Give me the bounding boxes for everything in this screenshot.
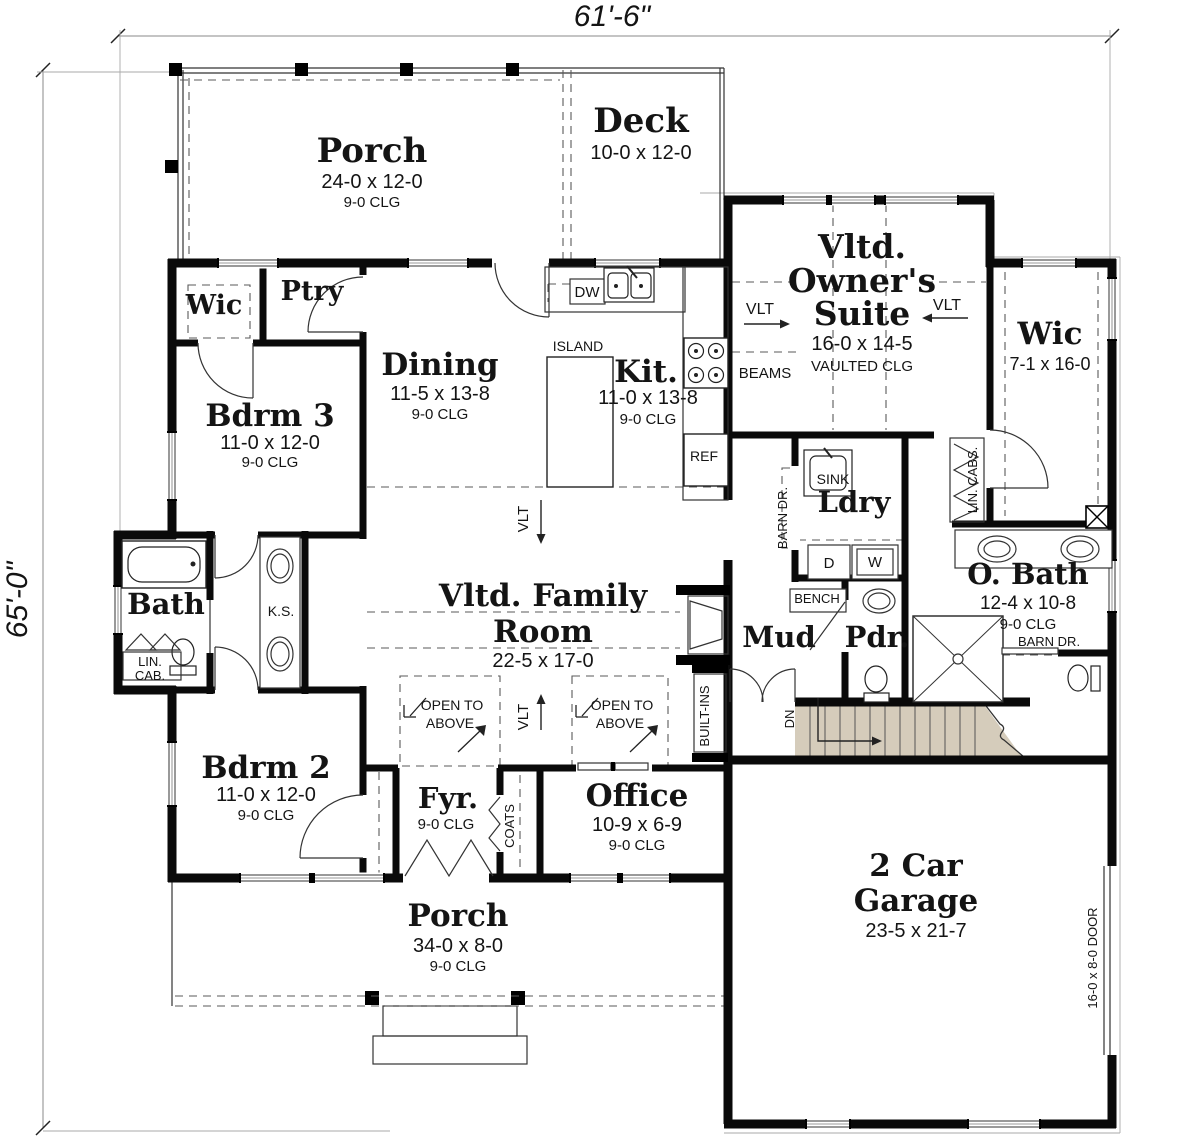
label-bdrm2-clg: 9-0 CLG <box>238 807 295 824</box>
label-obath-name: O. Bath <box>967 557 1089 591</box>
label-mud-name: Mud <box>742 620 815 654</box>
fireplace <box>676 585 730 665</box>
label-porch-bottom-name: Porch <box>408 898 509 934</box>
label-family-name-2: Room <box>493 614 593 650</box>
label-bench: BENCH <box>794 591 840 606</box>
label-vlt-left: VLT <box>746 301 774 318</box>
label-deck-size: 10-0 x 12-0 <box>590 142 691 164</box>
label-kit-name: Kit. <box>614 354 678 390</box>
chase-box <box>1086 506 1108 528</box>
label-garage-door: 16-0 x 8-0 DOOR <box>1085 907 1100 1008</box>
toilet-powder <box>864 666 889 702</box>
toilet-wc <box>1068 665 1100 691</box>
label-kit-clg: 9-0 CLG <box>620 411 677 428</box>
label-vlt-right: VLT <box>933 297 961 314</box>
label-obath-clg: 9-0 CLG <box>1000 616 1057 633</box>
label-kit-size: 11-0 x 13-8 <box>598 387 698 409</box>
vlt-arrow-family-top <box>537 500 546 544</box>
label-dining-name: Dining <box>381 347 498 383</box>
powder-sink <box>863 589 895 613</box>
label-dining-clg: 9-0 CLG <box>412 406 469 423</box>
label-dim-height: 65'-0" <box>1 560 34 638</box>
label-porch-top-name: Porch <box>317 131 428 171</box>
bathtub <box>122 541 206 588</box>
label-fyr-clg: 9-0 CLG <box>418 816 475 833</box>
label-dining-size: 11-5 x 13-8 <box>390 383 490 405</box>
label-lincab-2: CAB. <box>135 668 165 683</box>
label-bdrm3-clg: 9-0 CLG <box>242 454 299 471</box>
toilet-bath <box>170 639 196 675</box>
floor-plan-page: 61'-6"65'-0"Porch24-0 x 12-09-0 CLGDeck1… <box>0 0 1200 1139</box>
label-built-ins: BUILT-INS <box>697 685 712 746</box>
label-barn-dr-left: BARN DR. <box>775 487 790 549</box>
label-vlt-family-bottom: VLT <box>515 704 532 730</box>
label-family-size: 22-5 x 17-0 <box>492 650 593 672</box>
label-deck-name: Deck <box>593 101 690 141</box>
label-porch-bottom-size: 34-0 x 8-0 <box>413 935 503 957</box>
label-barn-dr-right: BARN DR. <box>1018 634 1080 649</box>
vlt-arrow-right <box>922 314 968 323</box>
label-porch-top-clg: 9-0 CLG <box>344 194 401 211</box>
label-fyr-name: Fyr. <box>418 781 478 815</box>
labels-layer: 61'-6"65'-0"Porch24-0 x 12-09-0 CLGDeck1… <box>1 0 1100 1009</box>
label-suite-size: 16-0 x 14-5 <box>811 333 912 355</box>
label-lincab-1: LIN. <box>138 654 162 669</box>
label-ptry-name: Ptry <box>281 276 345 307</box>
vlt-arrow-family-bottom <box>537 694 546 730</box>
label-beams: BEAMS <box>739 365 792 382</box>
label-pdr-name: Pdr. <box>845 620 910 654</box>
label-bdrm2-size: 11-0 x 12-0 <box>216 784 316 806</box>
label-office-clg: 9-0 CLG <box>609 837 666 854</box>
stairs-layer <box>795 702 1024 757</box>
kitchen-island <box>547 357 613 487</box>
label-wic-right-name: Wic <box>1017 316 1083 352</box>
kitchen-sink <box>604 266 654 302</box>
label-bdrm3-name: Bdrm 3 <box>205 398 334 434</box>
label-ks: K.S. <box>268 603 294 619</box>
range-stove <box>684 338 728 388</box>
label-lin-cabs: LIN. CABS. <box>965 447 980 513</box>
label-dw: DW <box>575 284 601 301</box>
label-porch-top-size: 24-0 x 12-0 <box>321 171 422 193</box>
label-bdrm2-name: Bdrm 2 <box>201 750 330 786</box>
label-garage-name-1: 2 Car <box>869 848 963 884</box>
label-open-above-2a: OPEN TO <box>591 697 654 713</box>
label-open-above-1b: ABOVE <box>426 715 474 731</box>
label-dn: DN <box>782 710 797 729</box>
vlt-arrow-left <box>744 320 790 329</box>
label-porch-bottom-clg: 9-0 CLG <box>430 958 487 975</box>
label-dim-width: 61'-6" <box>574 0 652 33</box>
label-open-above-2b: ABOVE <box>596 715 644 731</box>
label-garage-name-2: Garage <box>854 883 978 919</box>
label-coats: COATS <box>502 804 517 848</box>
label-ldry-name: Ldry <box>818 485 892 519</box>
label-open-above-1a: OPEN TO <box>421 697 484 713</box>
label-washer: W <box>868 554 883 571</box>
label-wic-right-size: 7-1 x 16-0 <box>1009 354 1090 374</box>
shower <box>913 616 1003 702</box>
label-suite-clg: VAULTED CLG <box>811 358 913 375</box>
label-office-name: Office <box>586 778 689 814</box>
label-wic-left-name: Wic <box>185 290 243 321</box>
label-bdrm3-size: 11-0 x 12-0 <box>220 432 320 454</box>
label-suite-name-3: Suite <box>814 294 911 333</box>
label-family-name-1: Vltd. Family <box>438 578 648 614</box>
label-garage-size: 23-5 x 21-7 <box>865 920 966 942</box>
floor-plan-canvas: 61'-6"65'-0"Porch24-0 x 12-09-0 CLGDeck1… <box>0 0 1200 1139</box>
label-dryer: D <box>824 555 835 572</box>
label-island: ISLAND <box>553 338 604 354</box>
label-vlt-family-top: VLT <box>515 506 532 532</box>
label-obath-size: 12-4 x 10-8 <box>980 593 1076 614</box>
label-office-size: 10-9 x 6-9 <box>592 814 682 836</box>
label-bath-name: Bath <box>127 587 205 621</box>
label-ref: REF <box>690 448 718 464</box>
